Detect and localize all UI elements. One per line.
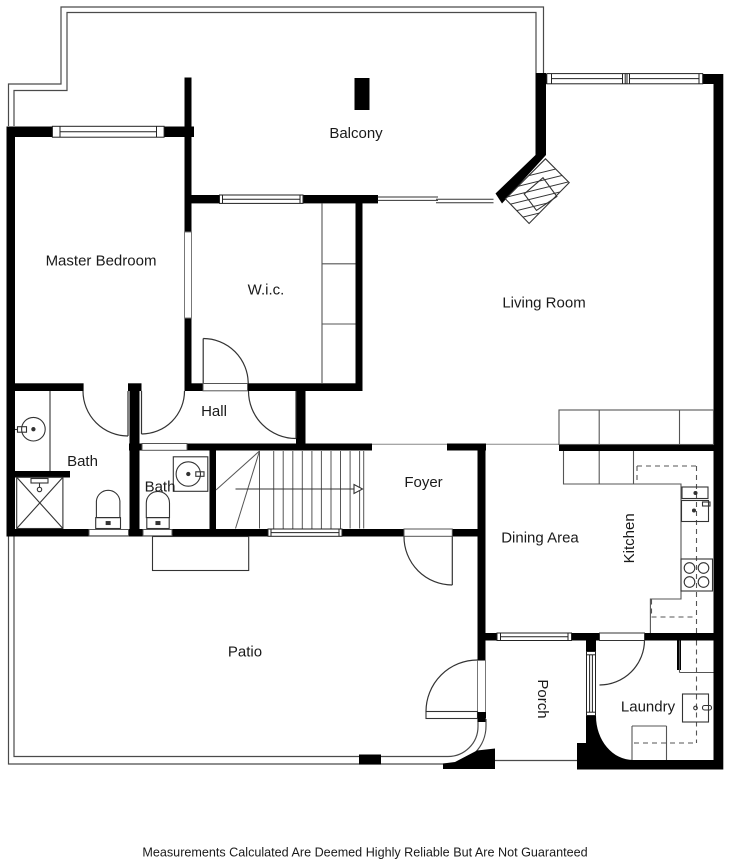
svg-text:Dining Area: Dining Area (501, 530, 579, 547)
svg-text:Hall: Hall (201, 403, 227, 420)
svg-text:Bath: Bath (145, 479, 176, 496)
svg-text:Kitchen: Kitchen (621, 513, 638, 563)
svg-text:Bath: Bath (67, 453, 98, 470)
svg-text:Porch: Porch (534, 679, 551, 718)
svg-text:Foyer: Foyer (404, 474, 442, 491)
svg-text:Measurements Calculated Are De: Measurements Calculated Are Deemed Highl… (142, 846, 587, 860)
svg-text:Living Room: Living Room (502, 295, 585, 312)
svg-text:Balcony: Balcony (329, 125, 383, 142)
svg-text:Patio: Patio (228, 644, 262, 661)
svg-text:Master Bedroom: Master Bedroom (46, 253, 157, 270)
svg-text:Laundry: Laundry (621, 699, 676, 716)
svg-text:W.i.c.: W.i.c. (248, 282, 285, 299)
